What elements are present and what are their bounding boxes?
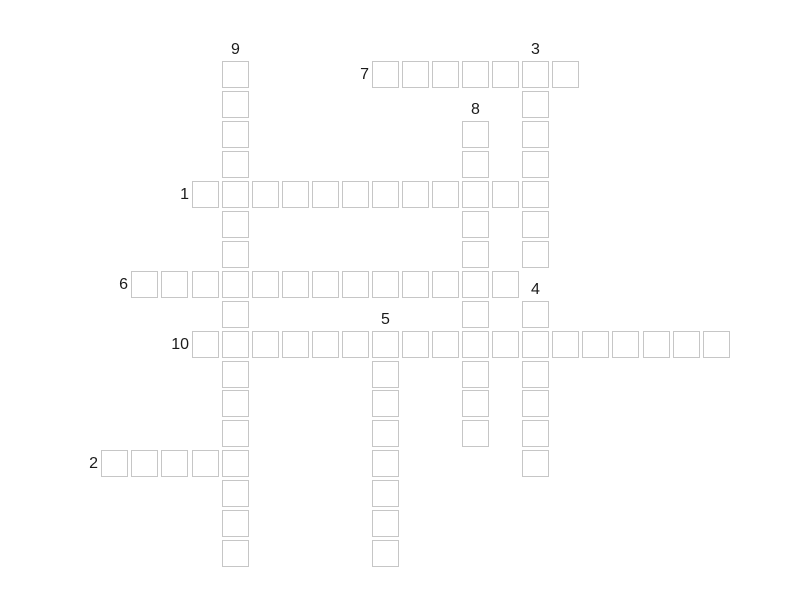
crossword-cell[interactable] — [161, 450, 188, 477]
crossword-cell[interactable] — [462, 361, 489, 388]
crossword-cell[interactable] — [462, 271, 489, 298]
clue-number-7-across: 7 — [329, 61, 369, 88]
crossword-cell[interactable] — [462, 61, 489, 88]
crossword-cell[interactable] — [462, 331, 489, 358]
crossword-cell[interactable] — [552, 331, 579, 358]
crossword-cell[interactable] — [101, 450, 128, 477]
crossword-cell[interactable] — [492, 271, 519, 298]
crossword-cell[interactable] — [462, 211, 489, 238]
crossword-cell[interactable] — [222, 420, 249, 447]
crossword-cell[interactable] — [522, 301, 549, 328]
crossword-cell[interactable] — [402, 271, 429, 298]
crossword-cell[interactable] — [462, 121, 489, 148]
crossword-cell[interactable] — [492, 331, 519, 358]
crossword-cell[interactable] — [462, 301, 489, 328]
clue-number-9-down: 9 — [222, 41, 249, 59]
crossword-cell[interactable] — [312, 181, 339, 208]
crossword-cell[interactable] — [222, 361, 249, 388]
crossword-cell[interactable] — [192, 450, 219, 477]
clue-number-6-across: 6 — [88, 271, 128, 298]
crossword-cell[interactable] — [522, 241, 549, 268]
crossword-cell[interactable] — [432, 271, 459, 298]
crossword-cell[interactable] — [522, 420, 549, 447]
crossword-cell[interactable] — [372, 61, 399, 88]
crossword-cell[interactable] — [222, 390, 249, 417]
crossword-cell[interactable] — [432, 331, 459, 358]
clue-number-8-down: 8 — [462, 101, 489, 119]
crossword-cell[interactable] — [522, 151, 549, 178]
crossword-cell[interactable] — [372, 510, 399, 537]
crossword-cell[interactable] — [372, 450, 399, 477]
crossword-cell[interactable] — [522, 331, 549, 358]
crossword-cell[interactable] — [522, 450, 549, 477]
crossword-cell[interactable] — [432, 181, 459, 208]
crossword-cell[interactable] — [222, 241, 249, 268]
crossword-cell[interactable] — [192, 271, 219, 298]
crossword-cell[interactable] — [552, 61, 579, 88]
crossword-cell[interactable] — [161, 271, 188, 298]
crossword-cell[interactable] — [372, 540, 399, 567]
crossword-cell[interactable] — [252, 181, 279, 208]
crossword-cell[interactable] — [462, 181, 489, 208]
crossword-cell[interactable] — [222, 211, 249, 238]
crossword-cell[interactable] — [522, 91, 549, 118]
crossword-cell[interactable] — [402, 331, 429, 358]
crossword-cell[interactable] — [582, 331, 609, 358]
crossword-cell[interactable] — [703, 331, 730, 358]
crossword-cell[interactable] — [492, 181, 519, 208]
crossword-cell[interactable] — [342, 331, 369, 358]
crossword-cell[interactable] — [522, 181, 549, 208]
clue-number-4-down: 4 — [522, 281, 549, 299]
clue-number-3-down: 3 — [522, 41, 549, 59]
crossword-board: 12345678910 — [0, 0, 800, 600]
clue-number-1-across: 1 — [149, 181, 189, 208]
crossword-cell[interactable] — [252, 331, 279, 358]
crossword-cell[interactable] — [222, 61, 249, 88]
crossword-cell[interactable] — [462, 420, 489, 447]
crossword-cell[interactable] — [492, 61, 519, 88]
crossword-cell[interactable] — [312, 331, 339, 358]
crossword-cell[interactable] — [282, 181, 309, 208]
crossword-cell[interactable] — [402, 181, 429, 208]
crossword-cell[interactable] — [673, 331, 700, 358]
crossword-cell[interactable] — [131, 271, 158, 298]
crossword-cell[interactable] — [522, 121, 549, 148]
clue-number-10-across: 10 — [149, 331, 189, 358]
crossword-cell[interactable] — [462, 390, 489, 417]
crossword-cell[interactable] — [192, 331, 219, 358]
crossword-cell[interactable] — [612, 331, 639, 358]
crossword-cell[interactable] — [222, 480, 249, 507]
crossword-cell[interactable] — [282, 331, 309, 358]
crossword-cell[interactable] — [222, 540, 249, 567]
crossword-cell[interactable] — [432, 61, 459, 88]
clue-number-5-down: 5 — [372, 311, 399, 329]
crossword-cell[interactable] — [372, 271, 399, 298]
crossword-cell[interactable] — [222, 301, 249, 328]
crossword-cell[interactable] — [522, 61, 549, 88]
crossword-cell[interactable] — [131, 450, 158, 477]
clue-number-2-across: 2 — [58, 450, 98, 477]
crossword-cell[interactable] — [222, 181, 249, 208]
crossword-cell[interactable] — [522, 390, 549, 417]
crossword-cell[interactable] — [342, 271, 369, 298]
crossword-cell[interactable] — [222, 450, 249, 477]
crossword-cell[interactable] — [252, 271, 279, 298]
crossword-cell[interactable] — [342, 181, 369, 208]
crossword-cell[interactable] — [522, 211, 549, 238]
crossword-cell[interactable] — [372, 420, 399, 447]
crossword-cell[interactable] — [402, 61, 429, 88]
crossword-cell[interactable] — [372, 331, 399, 358]
crossword-cell[interactable] — [372, 390, 399, 417]
crossword-cell[interactable] — [222, 510, 249, 537]
crossword-cell[interactable] — [462, 241, 489, 268]
crossword-cell[interactable] — [282, 271, 309, 298]
crossword-cell[interactable] — [222, 331, 249, 358]
crossword-cell[interactable] — [462, 151, 489, 178]
crossword-cell[interactable] — [222, 91, 249, 118]
crossword-cell[interactable] — [372, 181, 399, 208]
crossword-cell[interactable] — [522, 361, 549, 388]
crossword-cell[interactable] — [372, 361, 399, 388]
crossword-cell[interactable] — [222, 121, 249, 148]
crossword-cell[interactable] — [312, 271, 339, 298]
crossword-cell[interactable] — [192, 181, 219, 208]
crossword-cell[interactable] — [372, 480, 399, 507]
crossword-cell[interactable] — [222, 151, 249, 178]
crossword-cell[interactable] — [222, 271, 249, 298]
crossword-cell[interactable] — [643, 331, 670, 358]
